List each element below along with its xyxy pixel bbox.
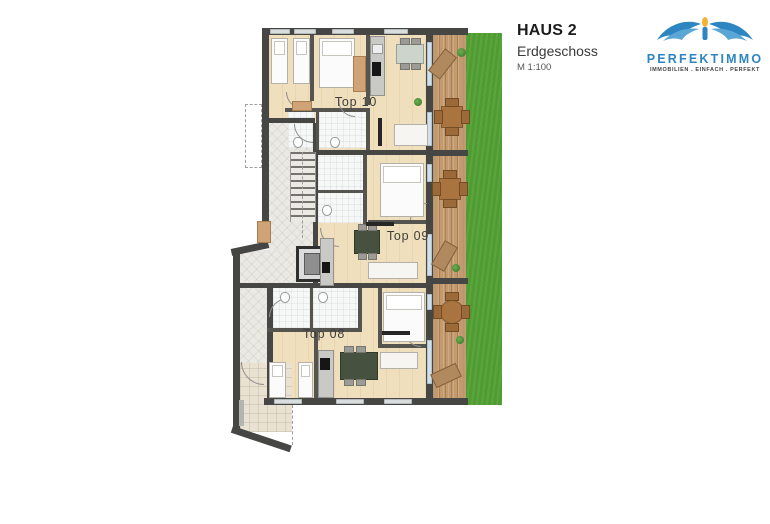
toilet-top08-wc xyxy=(280,292,290,303)
wall-left-upper xyxy=(262,33,269,243)
wall-divider-top10-top09 xyxy=(315,150,426,155)
deck-table-top10 xyxy=(441,106,463,128)
chair xyxy=(356,346,366,353)
deck-chair xyxy=(434,110,443,124)
sofa-top08 xyxy=(380,352,418,369)
deck-chair xyxy=(432,182,441,196)
wall-top xyxy=(262,28,468,35)
floor-plan: Top 10 Top 09 Top 08 xyxy=(0,0,770,524)
unit-label-top08: Top 08 xyxy=(294,327,354,341)
window-top08 xyxy=(427,294,432,310)
deck-chair xyxy=(461,110,470,124)
window-top-4 xyxy=(384,29,408,34)
corridor-lower xyxy=(240,283,267,363)
sofa-top09 xyxy=(368,262,418,279)
terrace-divider-2 xyxy=(433,278,468,284)
toilet-top08-bath xyxy=(318,292,328,303)
deck-chair xyxy=(433,305,442,319)
wardrobe-top10 xyxy=(353,56,366,92)
deck-plant-top09 xyxy=(452,264,460,272)
partition-top10-bath-mid xyxy=(316,110,319,150)
deck-chair xyxy=(443,199,457,208)
window-top-1 xyxy=(270,29,290,34)
chair xyxy=(411,63,421,70)
deck-chair xyxy=(461,305,470,319)
elevator-car xyxy=(304,253,320,275)
window-top-2 xyxy=(294,29,316,34)
deck-plant-top08 xyxy=(456,336,464,344)
bed-single-top08-a xyxy=(269,362,286,398)
toilet-top09 xyxy=(322,205,332,216)
bed-single-top10-a xyxy=(271,38,288,84)
partition-top10-bath-right xyxy=(366,108,370,150)
cooktop-top10 xyxy=(372,62,381,76)
staircase-guide-line xyxy=(302,152,303,238)
sofa-top10 xyxy=(394,124,428,146)
plant-top10 xyxy=(414,98,422,106)
chair xyxy=(411,38,421,45)
sink-top10 xyxy=(372,44,383,54)
bed-single-top10-b xyxy=(293,38,310,84)
window-top09 xyxy=(427,164,432,182)
partition-top08-bath-mid xyxy=(310,288,313,328)
unit-label-top10: Top 10 xyxy=(326,95,386,109)
tv-board-top08 xyxy=(382,331,410,335)
wall-stairwell-top xyxy=(262,118,315,123)
terrace-divider-1 xyxy=(433,150,468,156)
doormat xyxy=(239,400,244,426)
canopy-dashed-outline xyxy=(245,104,262,168)
dining-table-top10 xyxy=(396,44,424,64)
window-top-3 xyxy=(332,29,354,34)
chair xyxy=(358,253,367,260)
chair xyxy=(344,346,354,353)
unit-label-top09: Top 09 xyxy=(378,229,438,243)
window-bottom-3 xyxy=(384,399,412,404)
partition-top09-bath-split xyxy=(318,190,363,193)
deck-chair xyxy=(445,127,459,136)
partition-top10-bedrooms xyxy=(310,35,314,101)
deck-chair xyxy=(445,98,459,107)
pillar xyxy=(257,221,271,243)
sideboard-top10 xyxy=(292,101,312,111)
chair xyxy=(356,379,366,386)
toilet-top10-wc xyxy=(293,137,303,148)
deck-table-top09 xyxy=(439,178,461,200)
chair xyxy=(400,63,410,70)
staircase xyxy=(290,152,316,222)
window-bottom-1 xyxy=(274,399,302,404)
deck-plant-top10 xyxy=(457,48,466,57)
bed-single-top08-b xyxy=(298,362,313,398)
tv-board-top10 xyxy=(378,118,382,146)
chair xyxy=(368,253,377,260)
lawn xyxy=(466,33,502,405)
deck-chair xyxy=(445,323,459,332)
bed-double-top10 xyxy=(319,38,355,88)
bed-double-top09 xyxy=(380,163,424,217)
toilet-top10-bath xyxy=(330,137,340,148)
bath-top10 xyxy=(319,112,366,148)
partition-top08-bath-right xyxy=(358,288,362,332)
cooktop-top09 xyxy=(322,262,330,273)
deck-chair xyxy=(443,170,457,179)
partition-top09-bath-right xyxy=(363,155,367,225)
window-bottom-2 xyxy=(336,399,364,404)
cooktop-top08 xyxy=(320,358,330,370)
dining-table-top09 xyxy=(354,230,380,254)
tv-board-top09 xyxy=(366,222,394,226)
patio-dashed-edge xyxy=(292,405,293,445)
partition-top08-bedroom-left xyxy=(378,288,382,346)
deck-chair xyxy=(445,292,459,301)
chair xyxy=(400,38,410,45)
deck-chair xyxy=(459,182,468,196)
chair xyxy=(344,379,354,386)
dining-table-top08 xyxy=(340,352,378,380)
